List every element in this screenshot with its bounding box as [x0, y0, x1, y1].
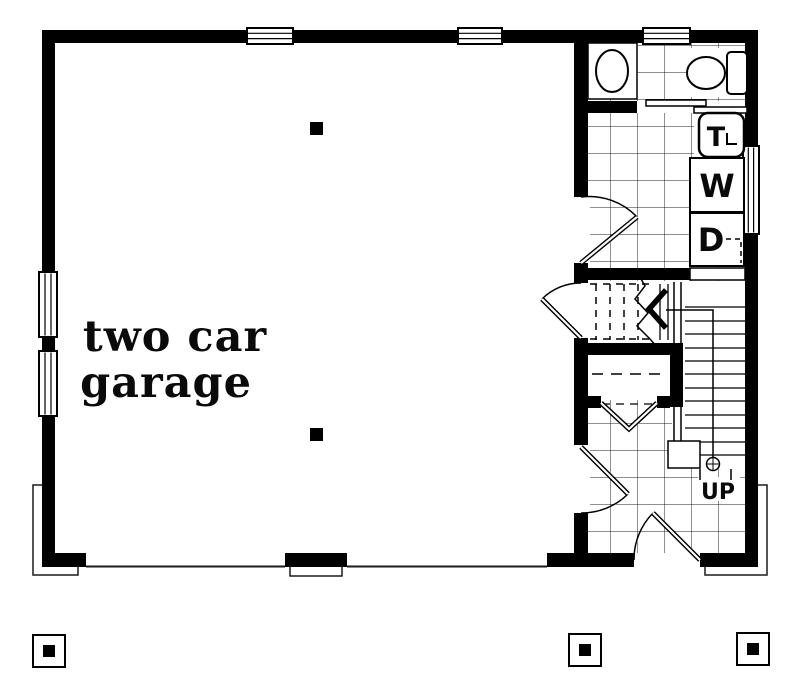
toilet-bowl-icon [687, 57, 725, 89]
window-top-1 [247, 28, 293, 44]
wall-closet-top [574, 343, 683, 355]
bifold-jamb-left [588, 396, 601, 408]
room-label-line2: garage [80, 358, 252, 408]
washer-label: W [699, 167, 734, 205]
wall-open-segment [690, 268, 745, 280]
wall-utility-bottom [574, 268, 690, 280]
wall-bottom-left-foot [42, 553, 86, 567]
wall-bottom-center-pier [285, 553, 347, 567]
laundry-tray-label: T [707, 122, 726, 153]
toilet-tank [727, 52, 747, 94]
window-top-bathroom [643, 28, 690, 44]
laundry-appliances: T W D [690, 113, 744, 266]
closet-interior [588, 355, 670, 400]
porch-column-left [33, 635, 65, 667]
wall-bottom-stairhall-left [547, 553, 634, 567]
wall-bottom-stairhall-right [700, 553, 758, 567]
wall-bathroom-bottom [574, 101, 637, 113]
window-top-2 [458, 28, 502, 44]
dryer-label: D [698, 221, 725, 259]
floor-plan-page: T W D [0, 0, 800, 691]
room-label: two car garage [80, 312, 267, 408]
window-left-2 [39, 351, 57, 416]
room-label-line1: two car [83, 312, 268, 362]
stair-newel-base [668, 441, 700, 468]
bifold-jamb-right [657, 396, 670, 408]
porch-column-right [737, 633, 769, 665]
floor-plan-drawing: T W D [0, 0, 800, 691]
window-left-1 [39, 272, 57, 337]
laundry-tray-box: T [699, 113, 744, 157]
stairs-up-label: UP [701, 480, 735, 505]
garage-post-bottom [310, 428, 323, 441]
garage-post-top [310, 122, 323, 135]
sink-icon [596, 50, 628, 92]
opening-utility-door [572, 197, 590, 263]
dryer-box: D [690, 213, 744, 266]
washer-box: W [690, 158, 744, 212]
porch-column-middle [569, 634, 601, 666]
window-right [743, 146, 759, 234]
